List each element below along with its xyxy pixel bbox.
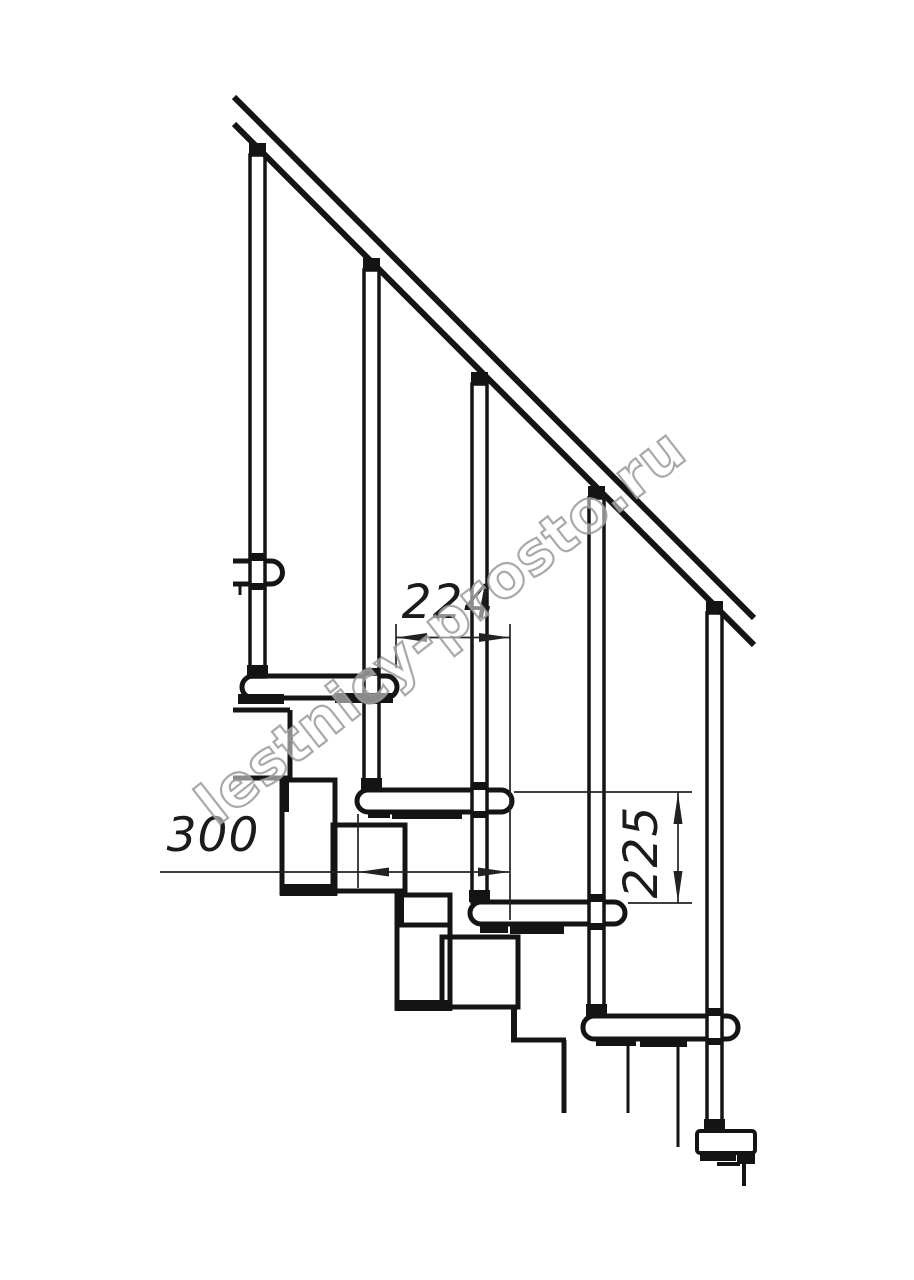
tread-bracket (700, 1151, 736, 1161)
baluster-collar-4 (586, 1004, 607, 1016)
baluster-cap-3 (471, 372, 488, 385)
pass-mark (473, 782, 486, 790)
arrowhead-right (478, 868, 509, 877)
tread-bracket (368, 810, 390, 818)
baluster-collar-5 (704, 1119, 725, 1131)
pass-mark (251, 553, 264, 561)
pass-mark (590, 894, 603, 902)
baluster-cap-2 (363, 258, 380, 271)
module-foot-1 (280, 884, 337, 896)
baluster-collar-1 (247, 665, 268, 677)
tread-bracket (510, 925, 564, 934)
pass-mark (473, 811, 486, 818)
module-box-3 (442, 937, 518, 1007)
baluster-collar-2 (361, 778, 382, 790)
baluster-1 (250, 155, 265, 677)
module-vertical-1 (282, 780, 335, 893)
dimension-label-step-rise: 225 (614, 806, 669, 899)
tread-bracket (392, 811, 462, 819)
baluster-5 (707, 613, 722, 1131)
balusters (250, 155, 722, 1131)
tread-bracket (238, 694, 284, 704)
pass-mark (251, 583, 264, 590)
pass-mark (590, 923, 603, 930)
bottom-trail (717, 1164, 744, 1186)
tread-5 (697, 1131, 755, 1153)
arrowhead-up (674, 793, 683, 824)
baluster-4 (589, 498, 604, 1016)
baluster-collar-3 (469, 890, 490, 902)
pass-mark (708, 1038, 721, 1045)
tread-bracket (596, 1038, 636, 1046)
fittings (238, 143, 755, 1164)
tread-bracket (480, 924, 508, 933)
bottom-trail-lines (717, 1164, 744, 1186)
pass-mark (708, 1008, 721, 1016)
tread-bracket (640, 1039, 687, 1047)
module-box-2 (333, 825, 405, 891)
module-trail-4 (628, 1045, 678, 1147)
arrowhead-down (674, 871, 683, 902)
arrowhead-left (358, 868, 389, 877)
staircase-elevation-diagram: 224 300 225 lestnicy-prosto.ru (0, 0, 914, 1280)
baluster-cap-1 (249, 143, 266, 156)
baluster-cap-5 (706, 601, 723, 614)
handrail-top-edge (234, 97, 754, 618)
module-zigzag-3 (511, 1040, 566, 1113)
staircase-drawing-page: 224 300 225 lestnicy-prosto.ru (0, 0, 914, 1280)
